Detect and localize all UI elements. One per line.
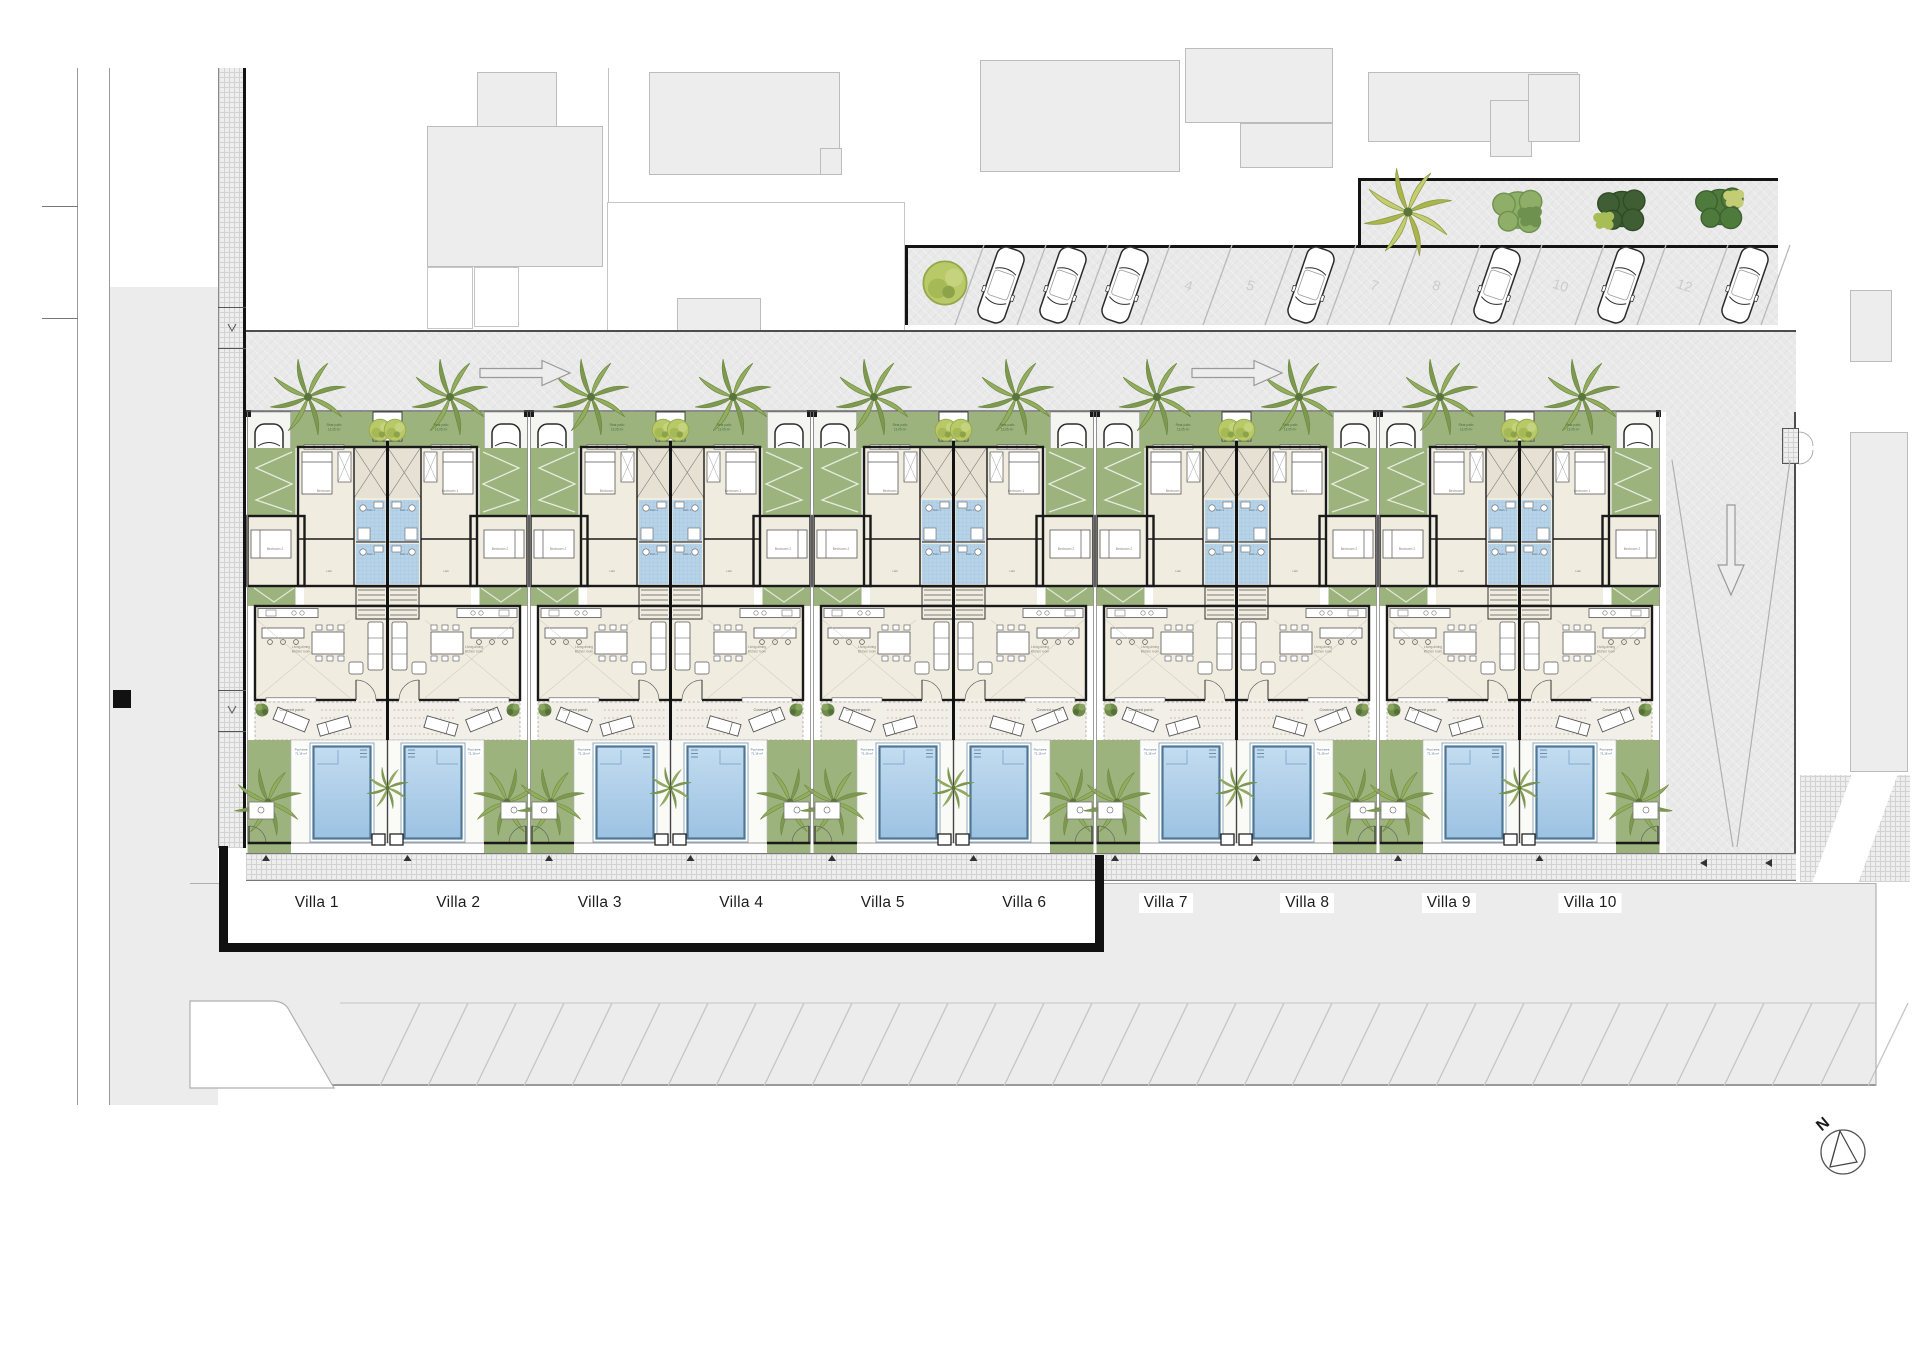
svg-text:Living-dining: Living-dining [1424,645,1442,649]
existing-building [1850,432,1908,772]
svg-text:Covered porch: Covered porch [754,708,779,712]
svg-text:13,05 m²: 13,05 m² [1001,428,1014,432]
svg-text:Bath 2: Bath 2 [1216,552,1225,556]
guest-parking-strip [905,245,1778,325]
street-tick-upper [42,206,78,207]
svg-text:Bedroom 2: Bedroom 2 [1399,547,1416,551]
villa-label: Villa 6 [997,893,1051,913]
svg-text:Pool area: Pool area [1600,748,1613,752]
plot-boundary-right [1095,855,1104,952]
street-tick-lower [42,318,78,319]
svg-text:71,16 m²: 71,16 m² [468,752,480,756]
svg-text:71,16 m²: 71,16 m² [295,752,307,756]
svg-text:Bath 1: Bath 1 [1499,508,1508,512]
plot-boundary-left [219,846,228,952]
existing-building [1850,290,1892,362]
villa-pair-5: Rear patioRear patio13,05 m²13,05 m²Bedr… [1367,359,1673,853]
svg-text:Covered porch: Covered porch [1320,708,1345,712]
svg-text:Pool area: Pool area [1034,748,1047,752]
villa-label: Villa 8 [1280,893,1334,913]
villa-unit-left [1367,410,1520,853]
svg-text:Covered porch: Covered porch [846,708,871,712]
villa-unit-right [1520,410,1673,853]
existing-building [477,72,557,127]
svg-text:Bedroom 1: Bedroom 1 [1166,489,1183,493]
patio-bush [1233,419,1255,441]
villa-label: Villa 4 [714,893,768,913]
existing-building [649,72,840,175]
svg-text:Bath 1: Bath 1 [966,508,975,512]
patio-bush [1218,419,1240,441]
villa-unit-right [954,410,1107,853]
svg-text:Bedroom 2: Bedroom 2 [492,547,509,551]
svg-text:Hall: Hall [1175,569,1181,573]
svg-text:Hall: Hall [726,569,732,573]
center-palm-tree [933,767,974,808]
svg-text:Hall: Hall [609,569,615,573]
driveway-vertical [1666,412,1796,853]
svg-text:13,05 m²: 13,05 m² [328,428,341,432]
svg-text:Hall: Hall [1009,569,1015,573]
svg-text:13,05 m²: 13,05 m² [611,428,624,432]
site-plan-canvas: Villa 1Villa 2Villa 3Villa 4Villa 5Villa… [0,0,1920,1356]
patio-bush [384,419,406,441]
villa16-label-strip [228,883,1095,943]
svg-text:Covered porch: Covered porch [471,708,496,712]
villa-unit-right [671,410,824,853]
villa-unit-left [518,410,671,853]
street-edge-line-left [77,68,78,1105]
villa-unit-left [235,410,388,853]
plan-room-labels: Rear patioRear patio13,05 m²13,05 m²Bedr… [267,423,509,756]
existing-building [1490,100,1532,157]
plan-room-labels: Rear patioRear patio13,05 m²13,05 m²Bedr… [1116,423,1358,756]
patio-bush [950,419,972,441]
patio-bush [667,419,689,441]
svg-text:Bath 2: Bath 2 [400,552,409,556]
svg-text:Covered porch: Covered porch [280,708,305,712]
existing-building [980,60,1180,172]
sidewalk-break-1 [218,307,246,308]
villa-unit-left [801,410,954,853]
existing-building [1185,48,1333,123]
svg-text:Bedroom 2: Bedroom 2 [1058,547,1075,551]
villa-label: Villa 7 [1139,893,1193,913]
plan-room-labels: Rear patioRear patio13,05 m²13,05 m²Bedr… [1399,423,1641,756]
svg-text:Covered porch: Covered porch [1129,708,1154,712]
svg-text:Rear patio: Rear patio [434,423,449,427]
svg-text:Rear patio: Rear patio [1283,423,1298,427]
svg-text:Bedroom 2: Bedroom 2 [267,547,284,551]
svg-text:Covered porch: Covered porch [1412,708,1437,712]
sidewalk-break-3 [218,690,246,691]
svg-text:13,05 m²: 13,05 m² [718,428,731,432]
svg-text:Pool area: Pool area [295,748,308,752]
svg-text:Living-dining: Living-dining [1314,645,1332,649]
villa-label: Villa 5 [856,893,910,913]
tree-strip [1358,178,1778,245]
villa-label: Villa 9 [1422,893,1476,913]
svg-text:Bedroom 2: Bedroom 2 [833,547,850,551]
plot-outline [474,267,519,327]
svg-text:Bedroom 2: Bedroom 2 [1624,547,1641,551]
villa-pair-1: Rear patioRear patio13,05 m²13,05 m²Bedr… [235,359,541,853]
svg-text:Bedroom 1: Bedroom 1 [442,489,459,493]
villa-label: Villa 1 [290,893,344,913]
svg-text:Bath 2: Bath 2 [650,552,659,556]
svg-text:71,16 m²: 71,16 m² [1600,752,1612,756]
villa-pair-2: Rear patioRear patio13,05 m²13,05 m²Bedr… [518,359,824,853]
svg-text:Covered porch: Covered porch [563,708,588,712]
svg-text:Rear patio: Rear patio [717,423,732,427]
driveway-horizontal [246,330,1796,412]
patio-bush [369,419,391,441]
svg-text:Bedroom 2: Bedroom 2 [1341,547,1358,551]
plot-boundary-line [608,68,609,202]
center-palm-tree [650,767,691,808]
svg-text:Bedroom 1: Bedroom 1 [1008,489,1025,493]
svg-text:Bath 2: Bath 2 [683,552,692,556]
svg-text:Bath 2: Bath 2 [966,552,975,556]
svg-text:kitchen room: kitchen room [575,650,594,654]
villa-pair-3: Rear patioRear patio13,05 m²13,05 m²Bedr… [801,359,1107,853]
existing-building [1528,74,1580,142]
existing-building [1240,123,1333,168]
svg-text:Living-dining: Living-dining [858,645,876,649]
svg-text:13,05 m²: 13,05 m² [1284,428,1297,432]
street-furniture-box [113,690,131,708]
svg-text:Living-dining: Living-dining [1031,645,1049,649]
patio-bush [652,419,674,441]
svg-text:71,16 m²: 71,16 m² [861,752,873,756]
svg-text:Bedroom 2: Bedroom 2 [550,547,567,551]
svg-text:13,05 m²: 13,05 m² [435,428,448,432]
svg-text:Bedroom 2: Bedroom 2 [775,547,792,551]
svg-text:Pool area: Pool area [751,748,764,752]
svg-text:kitchen room: kitchen room [1597,650,1616,654]
svg-text:Living-dining: Living-dining [1597,645,1615,649]
svg-text:Rear patio: Rear patio [610,423,625,427]
compass-north-label: N [1813,1114,1833,1134]
svg-text:Covered porch: Covered porch [1037,708,1062,712]
plan-room-labels: Rear patioRear patio13,05 m²13,05 m²Bedr… [833,423,1075,756]
utility-box [1782,428,1799,464]
svg-text:13,05 m²: 13,05 m² [894,428,907,432]
svg-text:Living-dining: Living-dining [575,645,593,649]
svg-text:Hall: Hall [1458,569,1464,573]
svg-text:kitchen room: kitchen room [1031,650,1050,654]
svg-text:13,05 m²: 13,05 m² [1567,428,1580,432]
svg-text:Rear patio: Rear patio [1176,423,1191,427]
svg-text:Bedroom 1: Bedroom 1 [1291,489,1308,493]
svg-text:Hall: Hall [1292,569,1298,573]
center-palm-tree [1216,767,1257,808]
svg-text:kitchen room: kitchen room [858,650,877,654]
villa-label: Villa 10 [1559,893,1622,913]
svg-text:Bath 1: Bath 1 [933,508,942,512]
svg-text:Hall: Hall [1575,569,1581,573]
villa-unit-right [1237,410,1390,853]
svg-text:Living-dining: Living-dining [1141,645,1159,649]
svg-text:Bedroom 1: Bedroom 1 [1574,489,1591,493]
villa-unit-right [388,410,541,853]
front-walkway [246,853,1796,881]
svg-text:71,16 m²: 71,16 m² [578,752,590,756]
patio-bush [1516,419,1538,441]
svg-text:Bath 1: Bath 1 [367,508,376,512]
svg-text:kitchen room: kitchen room [1141,650,1160,654]
svg-text:13,05 m²: 13,05 m² [1460,428,1473,432]
existing-building [427,126,603,267]
svg-text:Living-dining: Living-dining [748,645,766,649]
svg-text:Bath 2: Bath 2 [367,552,376,556]
svg-text:Rear patio: Rear patio [1000,423,1015,427]
svg-text:Pool area: Pool area [578,748,591,752]
svg-text:Bath 1: Bath 1 [683,508,692,512]
patio-bush [1501,419,1523,441]
svg-text:Pool area: Pool area [468,748,481,752]
svg-text:Bath 1: Bath 1 [1216,508,1225,512]
compass-rose: N [1813,1114,1865,1174]
svg-text:Bath 1: Bath 1 [400,508,409,512]
svg-text:Hall: Hall [892,569,898,573]
svg-text:Rear patio: Rear patio [1566,423,1581,427]
villa-label: Villa 2 [431,893,485,913]
svg-text:71,16 m²: 71,16 m² [1317,752,1329,756]
svg-text:Pool area: Pool area [861,748,874,752]
villa-label: Villa 3 [573,893,627,913]
svg-text:Bedroom 1: Bedroom 1 [600,489,617,493]
svg-text:Bedroom 1: Bedroom 1 [1449,489,1466,493]
svg-text:Rear patio: Rear patio [893,423,908,427]
svg-text:Bath 2: Bath 2 [1249,552,1258,556]
plot-outline [427,267,473,329]
svg-text:Living-dining: Living-dining [465,645,483,649]
svg-text:Bath 1: Bath 1 [1249,508,1258,512]
plot-boundary-bottom [219,943,1104,952]
svg-text:kitchen room: kitchen room [292,650,311,654]
svg-text:Rear patio: Rear patio [327,423,342,427]
svg-text:Covered porch: Covered porch [1603,708,1628,712]
svg-text:Rear patio: Rear patio [1459,423,1474,427]
svg-text:Bath 1: Bath 1 [1532,508,1541,512]
villa-unit-left [1084,410,1237,853]
svg-text:Hall: Hall [326,569,332,573]
svg-text:Hall: Hall [443,569,449,573]
svg-text:Bedroom 1: Bedroom 1 [883,489,900,493]
center-palm-tree [1499,767,1540,808]
svg-text:Pool area: Pool area [1144,748,1157,752]
svg-text:13,05 m²: 13,05 m² [1177,428,1190,432]
svg-text:71,16 m²: 71,16 m² [1144,752,1156,756]
patio-bush [935,419,957,441]
svg-text:Pool area: Pool area [1427,748,1440,752]
plan-room-labels: Rear patioRear patio13,05 m²13,05 m²Bedr… [550,423,792,756]
svg-text:Bath 1: Bath 1 [650,508,659,512]
existing-building [820,148,842,175]
svg-text:71,16 m²: 71,16 m² [751,752,763,756]
svg-text:Bath 2: Bath 2 [933,552,942,556]
svg-text:71,16 m²: 71,16 m² [1034,752,1046,756]
sidewalk-break-4 [218,731,246,732]
svg-text:kitchen room: kitchen room [1314,650,1333,654]
svg-text:Living-dining: Living-dining [292,645,310,649]
svg-text:Bedroom 2: Bedroom 2 [1116,547,1133,551]
center-palm-tree [367,767,408,808]
svg-text:Bedroom 1: Bedroom 1 [317,489,334,493]
svg-text:kitchen room: kitchen room [1424,650,1443,654]
svg-text:Bedroom 1: Bedroom 1 [725,489,742,493]
svg-text:Bath 2: Bath 2 [1532,552,1541,556]
svg-text:kitchen room: kitchen room [465,650,484,654]
svg-text:Pool area: Pool area [1317,748,1330,752]
svg-text:Bath 2: Bath 2 [1499,552,1508,556]
villa-pair-4: Rear patioRear patio13,05 m²13,05 m²Bedr… [1084,359,1390,853]
svg-text:71,16 m²: 71,16 m² [1427,752,1439,756]
sidewalk-break-2 [218,348,246,349]
svg-text:kitchen room: kitchen room [748,650,767,654]
